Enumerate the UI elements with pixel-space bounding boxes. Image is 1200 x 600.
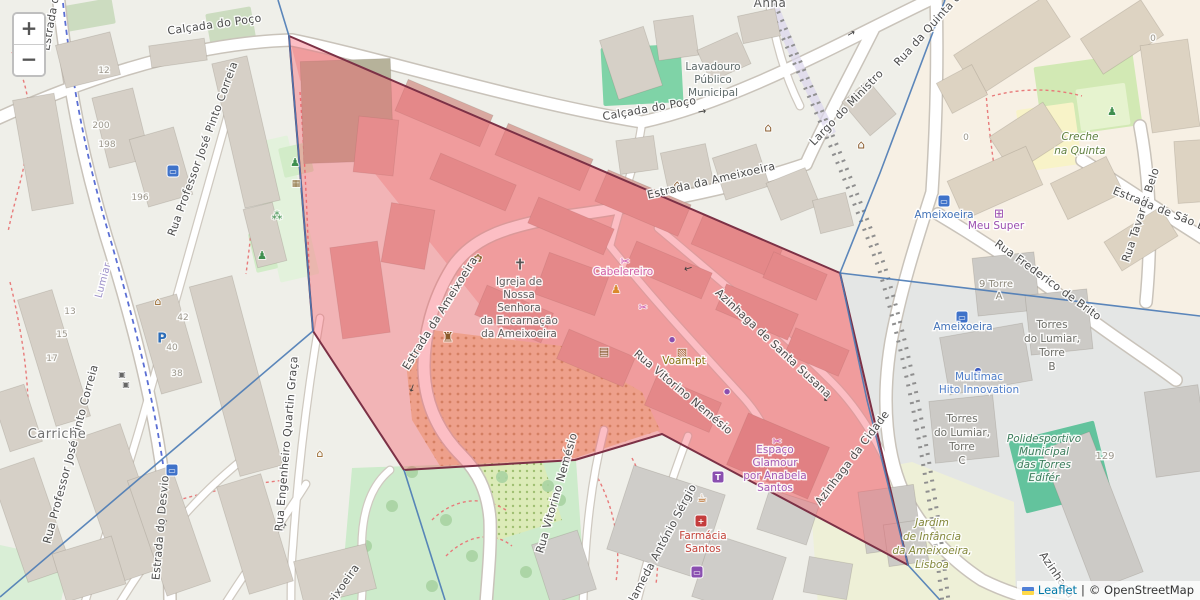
bus-stop-icon: ▭ bbox=[166, 464, 178, 476]
fitness-icon: ♟ bbox=[257, 249, 267, 262]
housenumber-label: 196 bbox=[131, 193, 148, 203]
poi-label: Torre bbox=[948, 441, 975, 453]
leaflet-zoom-control: + − bbox=[12, 12, 46, 77]
poi-label: B bbox=[1048, 361, 1055, 373]
beauty-icon: ✂ bbox=[639, 303, 647, 314]
poi-label: da Ameixoeira, bbox=[892, 545, 971, 557]
place-label: Anna bbox=[754, 0, 787, 10]
tree bbox=[466, 550, 478, 562]
ukraine-flag-icon bbox=[1022, 587, 1034, 595]
poi-label: Igreja de bbox=[496, 276, 542, 288]
poi-label: do Lumiar, bbox=[934, 427, 990, 439]
poi-label: Meu Super bbox=[968, 220, 1025, 232]
cafe-icon: ☕ bbox=[697, 492, 707, 505]
poi-label: por Anabela bbox=[743, 470, 807, 482]
poi-label: Municipal bbox=[1019, 446, 1069, 458]
tree bbox=[386, 500, 398, 512]
housenumber-label: 129 bbox=[1095, 451, 1114, 462]
poi-label: Nossa bbox=[503, 289, 535, 301]
bus-stop-icon: ▭ bbox=[167, 165, 179, 177]
train-station-icon: ▭ bbox=[938, 195, 950, 207]
map-container: ✝✿♜▤⌂⌂⌂▦♟⁂♟⌂⌂P▣▣▭▭▭▭⊞✂✂♟▧●●●✂T☕+▭♟→→←←↑↑… bbox=[0, 0, 1200, 600]
poi-label: Espaço bbox=[756, 444, 793, 456]
elevator-icon: ▣ bbox=[122, 380, 130, 389]
church-cross-icon: ✝ bbox=[514, 255, 527, 273]
poi-label: Público bbox=[694, 74, 732, 86]
poi-dot-icon: ● bbox=[724, 388, 730, 396]
map-canvas[interactable]: ✝✿♜▤⌂⌂⌂▦♟⁂♟⌂⌂P▣▣▭▭▭▭⊞✂✂♟▧●●●✂T☕+▭♟→→←←↑↑… bbox=[0, 0, 1200, 600]
poi-label: da Encarnação bbox=[480, 315, 558, 327]
poi-label: Torres bbox=[945, 413, 977, 425]
housenumber-label: 13 bbox=[64, 307, 75, 317]
poi-label: Santos bbox=[757, 482, 793, 494]
poi-label: Farmácia bbox=[679, 530, 726, 542]
building bbox=[616, 136, 658, 175]
poi-label: Torre bbox=[1038, 347, 1065, 359]
restaurant-people-icon: ♟ bbox=[611, 283, 621, 296]
svg-text:T: T bbox=[715, 473, 721, 482]
housenumber-label: 0 bbox=[1150, 34, 1156, 44]
svg-text:▭: ▭ bbox=[169, 167, 177, 176]
poi-label: Glamour bbox=[752, 457, 798, 469]
housenumber-label: 40 bbox=[166, 343, 178, 353]
building bbox=[1174, 139, 1200, 204]
poi-label: Ameixoeira bbox=[933, 321, 992, 333]
attribution-bar: Leaflet | © OpenStreetMap bbox=[1017, 581, 1200, 600]
tree bbox=[496, 471, 508, 483]
elevator-icon: ▣ bbox=[118, 370, 126, 379]
poi-label: Lavadouro bbox=[685, 61, 740, 73]
tree bbox=[440, 514, 452, 526]
poi-label: Torres bbox=[1035, 319, 1067, 331]
place-label: Carriche bbox=[28, 427, 87, 442]
poi-label: Edifér bbox=[1029, 472, 1060, 484]
poi-label: das Torres bbox=[1017, 459, 1072, 471]
housenumber-label: 42 bbox=[177, 313, 188, 323]
poi-label: 9 Torre bbox=[979, 279, 1013, 290]
poi-label: da Ameixoeira bbox=[481, 328, 557, 340]
leaflet-link[interactable]: Leaflet bbox=[1038, 583, 1077, 598]
poi-label: Multimac bbox=[955, 371, 1003, 383]
monument-icon: ⌂ bbox=[764, 120, 772, 134]
housenumber-label: 200 bbox=[92, 121, 109, 131]
tree bbox=[426, 580, 438, 592]
poi-label: Municipal bbox=[688, 87, 738, 99]
poi-label: Creche bbox=[1062, 131, 1099, 143]
library-book-icon: ▤ bbox=[599, 345, 609, 358]
zoom-in-button[interactable]: + bbox=[14, 14, 44, 45]
svg-text:▭: ▭ bbox=[168, 466, 176, 475]
clothes-icon: T bbox=[712, 471, 724, 483]
monument-icon: ⌂ bbox=[857, 137, 865, 151]
poi-label: Cabelereiro bbox=[593, 266, 653, 278]
landuse-area bbox=[1075, 83, 1130, 132]
poi-label: Senhora bbox=[497, 302, 541, 314]
housenumber-label: 17 bbox=[46, 354, 57, 364]
poi-label: Polidesportivo bbox=[1007, 433, 1081, 445]
playground-icon: ♟ bbox=[1107, 105, 1117, 118]
housenumber-label: 38 bbox=[171, 369, 183, 379]
oneway-arrow-icon: → bbox=[697, 106, 707, 118]
poi-label: Santos bbox=[685, 543, 721, 555]
attribution-separator: | bbox=[1081, 583, 1085, 598]
poi-dot-icon: ● bbox=[669, 336, 675, 344]
svg-text:▭: ▭ bbox=[940, 197, 948, 206]
shop-icon: ⌂ bbox=[155, 295, 162, 308]
shop-icon: ⌂ bbox=[317, 447, 324, 460]
computer-icon: ▭ bbox=[691, 566, 703, 578]
osm-attribution: © OpenStreetMap bbox=[1089, 583, 1194, 598]
playground-icon: ♟ bbox=[290, 156, 300, 169]
zoom-out-button[interactable]: − bbox=[14, 45, 44, 75]
housenumber-label: 15 bbox=[56, 330, 67, 340]
castle-icon: ♜ bbox=[442, 331, 454, 346]
poi-label: Lisboa bbox=[915, 559, 949, 571]
cart-icon: ⊞ bbox=[994, 206, 1004, 220]
svg-text:▭: ▭ bbox=[693, 568, 701, 577]
poi-label: Hito Innovation bbox=[939, 384, 1019, 396]
poi-label: A bbox=[996, 291, 1003, 302]
poi-label: do Lumiar, bbox=[1024, 333, 1080, 345]
housenumber-label: 0 bbox=[963, 133, 969, 143]
building bbox=[653, 15, 698, 60]
poi-label: na Quinta bbox=[1054, 145, 1105, 157]
poi-label: Ameixoeira bbox=[914, 209, 973, 221]
poi-label: Voam.pt bbox=[662, 355, 706, 367]
pharmacy-icon: + bbox=[695, 515, 707, 527]
tree bbox=[520, 566, 532, 578]
poi-label: C bbox=[958, 455, 965, 467]
svg-text:+: + bbox=[698, 517, 705, 526]
paw-icon: ⁂ bbox=[272, 209, 283, 222]
picnic-icon: ▦ bbox=[292, 179, 301, 189]
poi-label: Jardim bbox=[913, 517, 949, 529]
building bbox=[803, 556, 853, 599]
housenumber-label: 198 bbox=[98, 140, 115, 150]
poi-label: de Infância bbox=[903, 531, 961, 543]
housenumber-label: 12 bbox=[98, 66, 109, 76]
